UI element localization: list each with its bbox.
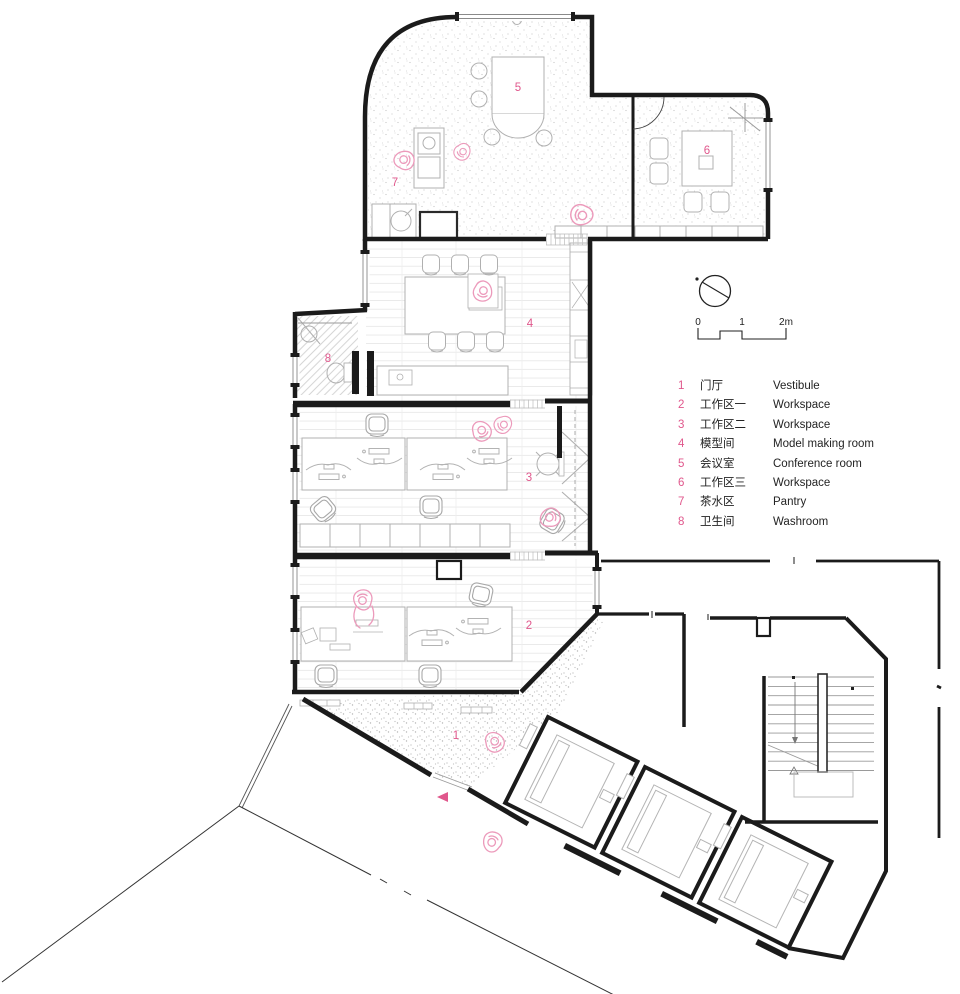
north-compass-icon (695, 276, 730, 307)
room-label-5: 5 (515, 82, 521, 94)
window (593, 567, 602, 609)
legend-number: 8 (678, 513, 700, 532)
legend-row: 2 工作区一 Workspace (678, 396, 913, 415)
legend-name-zh: 工作区三 (700, 474, 773, 493)
legend-row: 4 模型间 Model making room (678, 435, 913, 454)
person-figure (480, 829, 504, 854)
seat-icon (711, 192, 729, 212)
staircase (768, 674, 874, 797)
legend-name-en: Vestibule (773, 377, 913, 396)
stool-icon (487, 332, 504, 352)
seat-icon (650, 138, 668, 159)
legend: 1 门厅 Vestibule 2 工作区一 Workspace 3 工作区二 W… (678, 377, 913, 532)
chair-icon (420, 496, 442, 519)
legend-row: 5 会议室 Conference room (678, 455, 913, 474)
scale-tick-2: 2m (779, 317, 793, 328)
chair-icon (366, 414, 388, 437)
legend-name-zh: 模型间 (700, 435, 773, 454)
joint-tick (652, 557, 794, 620)
wall-notch (757, 618, 770, 636)
ground-lines (2, 806, 616, 994)
appliance-icon (420, 212, 457, 238)
wall-stub (557, 406, 562, 458)
window (361, 250, 370, 307)
window (455, 12, 575, 21)
legend-name-en: Model making room (773, 435, 913, 454)
stool-icon (452, 255, 469, 275)
stool-icon (423, 255, 440, 275)
room-label-3: 3 (526, 472, 532, 484)
room-label-6: 6 (704, 145, 710, 157)
legend-row: 3 工作区二 Workspace (678, 416, 913, 435)
legend-name-zh: 工作区一 (700, 396, 773, 415)
legend-name-en: Pantry (773, 493, 913, 512)
legend-name-en: Workspace (773, 474, 913, 493)
legend-row: 1 门厅 Vestibule (678, 377, 913, 396)
stool-icon (458, 332, 475, 352)
threshold (546, 234, 588, 245)
stool-icon (429, 332, 446, 352)
room-label-7: 7 (392, 177, 398, 189)
shelf-row (300, 524, 510, 547)
wall-stub (367, 351, 374, 396)
scale-tick-0: 0 (695, 317, 701, 328)
side-rooms (494, 711, 832, 959)
work-bench (377, 366, 508, 395)
legend-number: 3 (678, 416, 700, 435)
seat-icon (684, 192, 702, 212)
room-label-8: 8 (325, 353, 331, 365)
window (291, 353, 300, 387)
room-label-1: 1 (453, 730, 459, 742)
seat-icon (650, 163, 668, 184)
scale-tick-1: 1 (739, 317, 745, 328)
room-label-4: 4 (527, 318, 534, 330)
window (291, 468, 300, 504)
legend-row: 8 卫生间 Washroom (678, 513, 913, 532)
window (291, 413, 300, 449)
wall-stub (352, 351, 359, 394)
chair-icon (419, 665, 441, 688)
chair-icon (315, 665, 337, 688)
legend-name-en: Washroom (773, 513, 913, 532)
stool-icon (481, 255, 498, 275)
legend-row: 7 茶水区 Pantry (678, 493, 913, 512)
window (764, 118, 773, 192)
legend-row: 6 工作区三 Workspace (678, 474, 913, 493)
entrance-arrow-icon (437, 792, 448, 802)
legend-number: 1 (678, 377, 700, 396)
legend-name-zh: 门厅 (700, 377, 773, 396)
fence-double-line (239, 704, 292, 808)
window (291, 563, 300, 599)
room-label-2: 2 (526, 620, 532, 632)
legend-name-zh: 工作区二 (700, 416, 773, 435)
legend-number: 6 (678, 474, 700, 493)
legend-name-zh: 会议室 (700, 455, 773, 474)
legend-name-zh: 茶水区 (700, 493, 773, 512)
legend-number: 2 (678, 396, 700, 415)
legend-name-en: Workspace (773, 396, 913, 415)
legend-number: 5 (678, 455, 700, 474)
floor-plan-page: 1 2 3 4 5 6 7 8 0 1 2m 1 门厅 Vestibule 2 … (0, 0, 960, 994)
wall-stair-enclosure (745, 676, 878, 822)
legend-number: 4 (678, 435, 700, 454)
threshold (510, 400, 545, 409)
wall-property-right (937, 561, 941, 838)
threshold (510, 552, 545, 561)
scale-bar: 0 1 2m (695, 317, 793, 339)
window (291, 628, 300, 664)
legend-name-zh: 卫生间 (700, 513, 773, 532)
legend-name-en: Workspace (773, 416, 913, 435)
wall-box (437, 561, 461, 579)
legend-name-en: Conference room (773, 455, 913, 474)
legend-number: 7 (678, 493, 700, 512)
